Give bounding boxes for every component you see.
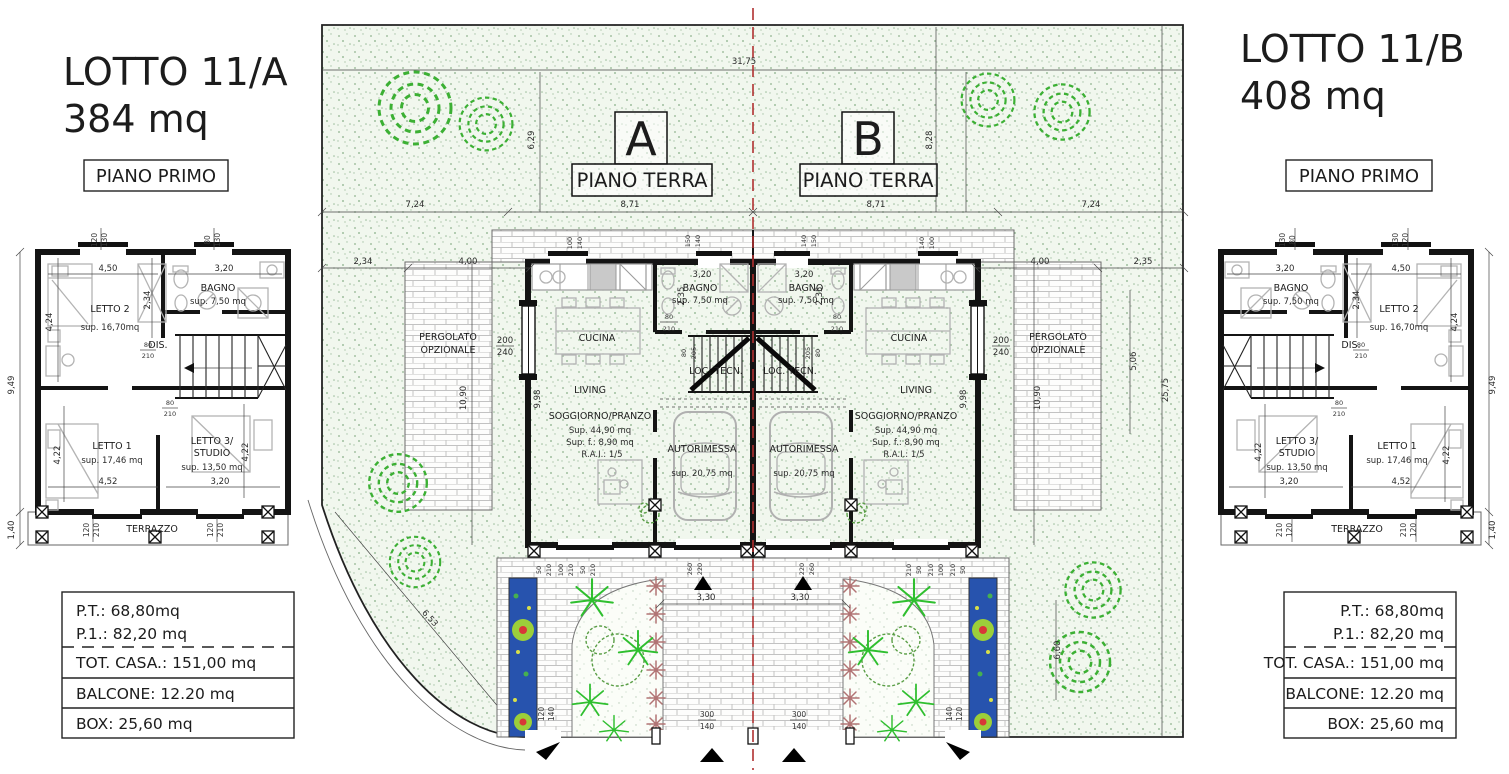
opening4-h: 220: [696, 563, 704, 575]
soggiorno-area: Sup. 44,90 mq: [875, 426, 937, 436]
win2-w: 80: [1288, 235, 1297, 245]
dim-bagno-h: 2,35: [677, 287, 687, 306]
summary-balcone: BALCONE: 12.20 mq: [76, 685, 235, 703]
win1-h: 130: [100, 233, 109, 248]
dim-letto2-h1: 2,34: [143, 291, 153, 310]
terrace-label: TERRAZZO: [125, 524, 178, 535]
summary-p1: P.1.: 82,20 mq: [76, 625, 187, 643]
win3-w: 120: [1409, 523, 1418, 538]
summary-pt: P.T.: 68,80mq: [76, 602, 180, 620]
door2-h: 205: [690, 347, 698, 359]
summary-box: BOX: 25,60 mq: [76, 715, 193, 733]
dim-bagno-w: 3,20: [795, 270, 814, 280]
win4-h: 210: [1275, 523, 1284, 538]
room-autorimessa: AUTORIMESSA: [769, 444, 839, 455]
side-gate-right-h: 140: [945, 707, 954, 722]
dim-letto2-h1: 2,34: [1352, 291, 1362, 310]
side-gate-right-w: 120: [955, 707, 964, 722]
dim-terrace-d: 1,40: [7, 521, 17, 540]
dim-bagno-w: 3,20: [1276, 264, 1295, 274]
dim-a1: 7,24: [406, 200, 425, 210]
win3-w: 120: [82, 523, 91, 538]
summary-box: BOX: 25,60 mq: [1327, 715, 1444, 733]
dim-rb: 2,35: [1134, 257, 1153, 267]
dim-bagno-h: 2,35: [815, 287, 825, 306]
bagno-area: sup. 7,50 mq: [1263, 297, 1319, 307]
dim-terrace-d: 1,40: [1488, 521, 1498, 540]
dim-pergola-right: 10,90: [1033, 386, 1043, 410]
door2-w: 80: [1335, 399, 1343, 407]
dim-letto2-h2: 4,24: [45, 313, 55, 332]
dim-letto3-w: 3,20: [1280, 477, 1299, 487]
dim-b2: 8,71: [867, 200, 886, 210]
win-k2-w: 150: [810, 235, 818, 247]
opening3-h: 210: [589, 564, 597, 576]
dining-table: [556, 298, 640, 364]
room-letto2: LETTO 2: [90, 304, 129, 315]
dim-right-inner: 5,06: [1129, 352, 1139, 371]
room-living: LIVING: [900, 385, 932, 396]
summary-balcone: BALCONE: 12.20 mq: [1285, 685, 1444, 703]
summary-tot: TOT. CASA.: 151,00 mq: [1263, 654, 1444, 672]
kitchen-window-sill: [548, 251, 588, 256]
gate-b-h: 140: [792, 722, 807, 731]
dim-left-depth: 6,29: [527, 131, 537, 150]
room-cucina: CUCINA: [891, 333, 928, 344]
pillar-icon: [649, 499, 661, 511]
dim-letto1-h: 4,22: [1442, 446, 1452, 465]
win3-h: 210: [92, 523, 101, 538]
win2-h: 130: [213, 233, 222, 248]
room-living: LIVING: [574, 385, 606, 396]
lot-a-title: LOTTO 11/A: [63, 50, 288, 94]
pergola-right-label-1: PERGOLATO: [1029, 332, 1087, 343]
win-side-w: 200: [993, 336, 1009, 346]
opening4-w: 260: [686, 563, 694, 575]
dim-bagno-w: 3,20: [215, 264, 234, 274]
pillar-icon: [36, 506, 48, 518]
lot-b-floor: PIANO PRIMO: [1299, 166, 1419, 187]
door2-h: 205: [804, 347, 812, 359]
opening2-h: 210: [927, 564, 935, 576]
room-bagno-area: sup. 7,50 mq: [778, 296, 834, 306]
win-k1-w: 100: [566, 237, 574, 249]
dim-letto1-w: 4,52: [99, 477, 118, 487]
win2-h: 130: [1278, 233, 1287, 248]
pillar-icon: [36, 531, 48, 543]
lot-a-area: 384 mq: [63, 97, 209, 141]
french-door-sill: [556, 545, 614, 550]
pillar-icon: [262, 506, 274, 518]
dim-la: 2,34: [354, 257, 373, 267]
door2-h: 210: [1333, 410, 1345, 418]
dim-letto2-w: 4,50: [1392, 264, 1411, 274]
room-letto1: LETTO 1: [92, 441, 131, 452]
letto1-area: sup. 17,46 mq: [1366, 456, 1427, 466]
door-h: 210: [142, 352, 154, 360]
dim-ra: 4,00: [1031, 257, 1050, 267]
bagno-area: sup. 7,50 mq: [190, 297, 246, 307]
autorimessa-area: sup. 20,75 mq: [773, 469, 834, 479]
door1-h: 210: [831, 325, 843, 333]
win4-w: 120: [1285, 523, 1294, 538]
gate-a-h: 140: [700, 722, 715, 731]
win2-w: 80: [203, 235, 212, 245]
win-k1-h: 140: [918, 237, 926, 249]
door2-w: 80: [680, 349, 688, 357]
dim-bagno-w: 3,20: [693, 270, 712, 280]
dim-unit-depth: 9,98: [959, 390, 969, 409]
opening1-w: 50: [959, 566, 967, 574]
dim-letto3-h: 4,22: [241, 443, 251, 462]
dim-letto1-w: 4,52: [1392, 477, 1411, 487]
win4-w: 120: [206, 523, 215, 538]
floor-plan-page: A PIANO TERRA B PIANO TERRA PERGOLATO OP…: [0, 0, 1509, 774]
dim-letto3-h: 4,22: [1254, 443, 1264, 462]
win-k1-h: 140: [576, 237, 584, 249]
win-k2-h: 140: [694, 235, 702, 247]
dim-b1: 7,24: [1082, 200, 1101, 210]
bath-window-sill: [696, 251, 732, 256]
opening3-w: 50: [579, 566, 587, 574]
gate-b-w: 300: [792, 710, 807, 719]
door2-w: 80: [814, 349, 822, 357]
unit-b-floor-label: PIANO TERRA: [803, 169, 935, 192]
flower-bed: [509, 578, 537, 737]
room-bagno: BAGNO: [683, 283, 718, 294]
dim-unit-depth: 9,98: [533, 390, 543, 409]
win-side-h: 240: [497, 348, 513, 358]
driveway-gate: [658, 730, 750, 743]
pedestrian-gate: [525, 730, 561, 743]
dim-letto3-w: 3,20: [211, 477, 230, 487]
room-soggiorno: SOGGIORNO/PRANZO: [549, 411, 651, 422]
unit-a-floor-label: PIANO TERRA: [577, 169, 709, 192]
win-k2-h: 140: [800, 235, 808, 247]
win-k1-w: 100: [928, 237, 936, 249]
pillar-icon: [262, 531, 274, 543]
dim-right-low: 6,60: [1053, 641, 1063, 660]
win1-h: 130: [1391, 233, 1400, 248]
dim-total-h: 9,49: [7, 376, 17, 395]
opening2-w: 100: [937, 564, 945, 576]
room-letto3-1: LETTO 3/: [191, 436, 234, 447]
pergola-left-label-2: OPZIONALE: [421, 345, 476, 356]
dim-drive-b: 3,30: [791, 593, 810, 603]
dim-total-h: 9,49: [1488, 376, 1498, 395]
side-gate-left-w: 120: [537, 707, 546, 722]
soggiorno-area-f: Sup. f.: 8,90 mq: [872, 438, 940, 448]
door-w: 80: [1357, 341, 1365, 349]
room-letto3-2: STUDIO: [1279, 448, 1315, 459]
room-letto3-2: STUDIO: [194, 448, 230, 459]
opening1-w: 50: [535, 566, 543, 574]
dim-pergola-left: 10,90: [459, 386, 469, 410]
room-autorimessa: AUTORIMESSA: [667, 444, 737, 455]
dim-letto2-h2: 4,24: [1450, 313, 1460, 332]
room-letto1: LETTO 1: [1377, 441, 1416, 452]
letto3-area: sup. 13,50 mq: [1266, 463, 1327, 473]
site-drawing: A PIANO TERRA B PIANO TERRA PERGOLATO OP…: [0, 0, 1509, 774]
dim-right-depth: 8,28: [925, 131, 935, 150]
opening1-h: 210: [949, 564, 957, 576]
door1-h: 210: [663, 325, 675, 333]
letto1-area: sup. 17,46 mq: [81, 456, 142, 466]
lot-b-title: LOTTO 11/B: [1240, 27, 1465, 71]
soggiorno-area-f: Sup. f.: 8,90 mq: [566, 438, 634, 448]
room-soggiorno: SOGGIORNO/PRANZO: [855, 411, 957, 422]
letto2-area: sup. 16,70mq: [1370, 323, 1429, 333]
lot-a-floor: PIANO PRIMO: [96, 166, 216, 187]
soggiorno-area: Sup. 44,90 mq: [569, 426, 631, 436]
opening1-h: 210: [545, 564, 553, 576]
pergola-paving: [405, 262, 492, 510]
side-window: [519, 300, 537, 380]
garage-door-sill: [674, 545, 742, 550]
summary-tot: TOT. CASA.: 151,00 mq: [75, 654, 256, 672]
room-letto2: LETTO 2: [1379, 304, 1418, 315]
dim-lb: 4,00: [459, 257, 478, 267]
letto2-area: sup. 16,70mq: [81, 323, 140, 333]
lot-b-area: 408 mq: [1240, 74, 1386, 118]
summary-pt: P.T.: 68,80mq: [1340, 602, 1444, 620]
win1-w: 120: [90, 233, 99, 248]
win3-h: 210: [1399, 523, 1408, 538]
room-letto3-1: LETTO 3/: [1276, 436, 1319, 447]
dim-drive-a: 3,30: [697, 593, 716, 603]
win-side-h: 240: [993, 348, 1009, 358]
unit-a-letter: A: [625, 112, 657, 166]
door1-w: 80: [833, 313, 841, 321]
door-w: 80: [144, 341, 152, 349]
letto3-area: sup. 13,50 mq: [181, 463, 242, 473]
pergola-right-label-2: OPZIONALE: [1031, 345, 1086, 356]
door2-h: 210: [164, 410, 176, 418]
unit-b-letter: B: [852, 112, 884, 166]
summary-p1: P.1.: 82,20 mq: [1333, 625, 1444, 643]
opening2-w: 100: [557, 564, 565, 576]
room-bagno: BAGNO: [1274, 283, 1309, 294]
side-gate-left-h: 140: [547, 707, 556, 722]
dim-letto2-w: 4,50: [99, 264, 118, 274]
win-side-w: 200: [497, 336, 513, 346]
autorimessa-area: sup. 20,75 mq: [671, 469, 732, 479]
terrace-label: TERRAZZO: [1330, 524, 1383, 535]
win1-w: 120: [1401, 233, 1410, 248]
dim-a2: 8,71: [621, 200, 640, 210]
room-bagno: BAGNO: [201, 283, 236, 294]
door1-w: 80: [665, 313, 673, 321]
dim-total-width: 31,75: [732, 57, 756, 67]
door-h: 210: [1355, 352, 1367, 360]
pergola-left-label-1: PERGOLATO: [419, 332, 477, 343]
door2-w: 80: [166, 399, 174, 407]
gate-a-w: 300: [700, 710, 715, 719]
soggiorno-rai: R.A.I.: 1/5: [883, 450, 924, 460]
win-k2-w: 150: [684, 235, 692, 247]
pillar-icon: [528, 545, 540, 557]
win4-h: 210: [216, 523, 225, 538]
opening3-w: 50: [915, 566, 923, 574]
kitchen-fixtures: [532, 264, 652, 290]
room-cucina: CUCINA: [579, 333, 616, 344]
soggiorno-rai: R.A.I.: 1/5: [581, 450, 622, 460]
room-loc-tecn: LOC. TECN.: [689, 366, 743, 377]
dim-letto1-h: 4,22: [53, 446, 63, 465]
opening4-w: 260: [808, 563, 816, 575]
opening4-h: 220: [798, 563, 806, 575]
pillar-icon: [649, 545, 661, 557]
opening3-h: 210: [905, 564, 913, 576]
gate-post: [652, 728, 660, 744]
room-loc-tecn: LOC. TECN.: [763, 366, 817, 377]
opening2-h: 210: [567, 564, 575, 576]
dim-right-side: 25,75: [1161, 378, 1171, 402]
